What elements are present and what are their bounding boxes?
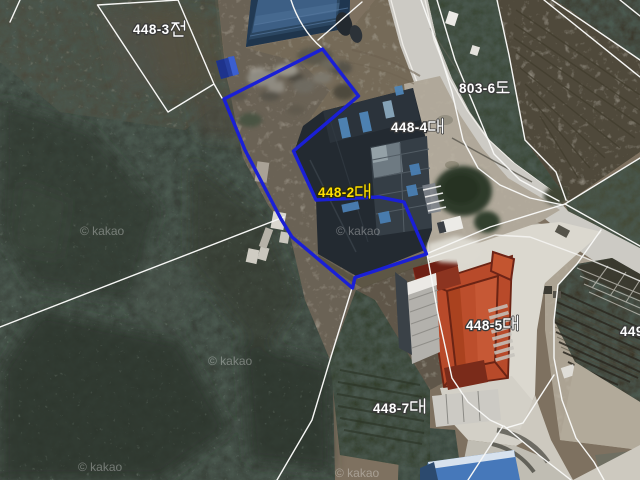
svg-text:© kakao: © kakao [78,460,123,474]
svg-text:448-2: 448-2 [318,185,355,200]
svg-text:© kakao: © kakao [336,224,381,238]
svg-text:448-3: 448-3 [133,22,170,37]
svg-text:© kakao: © kakao [208,354,253,368]
svg-text:448-4: 448-4 [391,120,428,135]
svg-text:© kakao: © kakao [335,466,380,480]
svg-text:© kakao: © kakao [80,224,125,238]
svg-text:803-6: 803-6 [459,81,496,96]
svg-text:449-: 449- [620,324,640,339]
svg-text:448-5: 448-5 [466,318,503,333]
svg-text:448-7: 448-7 [373,401,410,416]
